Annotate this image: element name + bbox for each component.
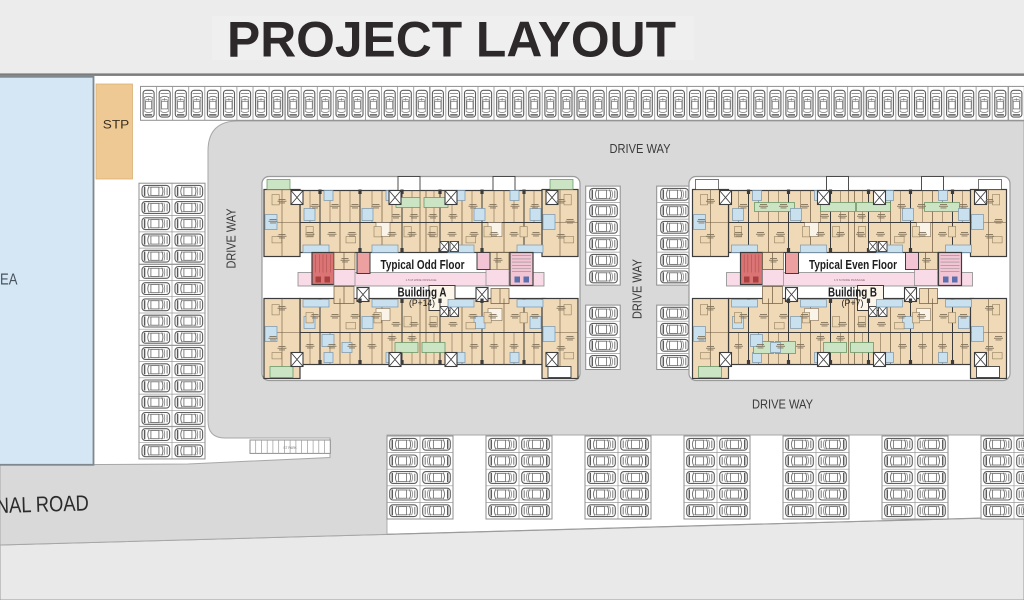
svg-text:DRIVE WAY: DRIVE WAY bbox=[610, 141, 671, 156]
svg-text:PROJECT LAYOUT: PROJECT LAYOUT bbox=[227, 12, 676, 68]
svg-text:1.5 M WIDE PASSAGE: 1.5 M WIDE PASSAGE bbox=[834, 278, 865, 282]
svg-text:(P+7): (P+7) bbox=[842, 298, 864, 309]
svg-text:Typical Even Floor: Typical Even Floor bbox=[809, 258, 897, 272]
svg-text:DRIVE WAY: DRIVE WAY bbox=[630, 259, 645, 319]
svg-text:STP: STP bbox=[103, 120, 130, 132]
svg-text:DRIVE WAY: DRIVE WAY bbox=[752, 397, 813, 412]
svg-text:EA: EA bbox=[0, 272, 18, 289]
svg-text:ST PARK: ST PARK bbox=[283, 446, 297, 450]
svg-text:NAL ROAD: NAL ROAD bbox=[0, 490, 89, 518]
svg-text:(P+14): (P+14) bbox=[409, 298, 435, 309]
svg-text:DRIVE WAY: DRIVE WAY bbox=[224, 208, 239, 268]
svg-text:1.5 M WIDE PASSAGE: 1.5 M WIDE PASSAGE bbox=[405, 278, 436, 282]
svg-text:Typical Odd Floor: Typical Odd Floor bbox=[381, 258, 465, 272]
